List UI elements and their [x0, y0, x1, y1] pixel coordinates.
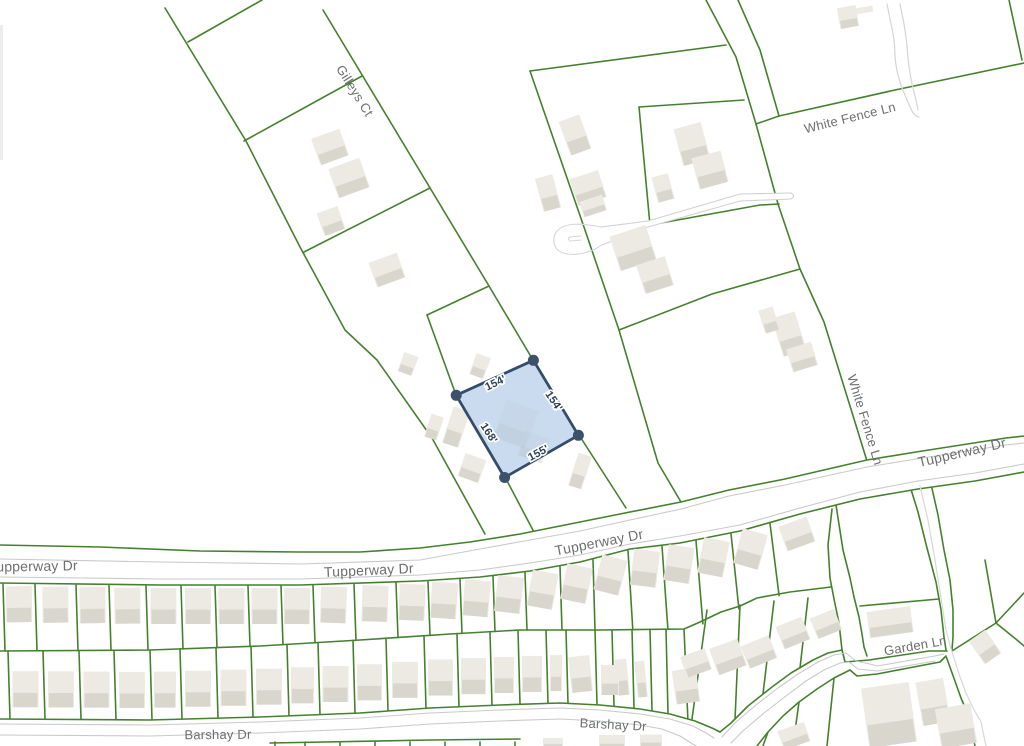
svg-text:Barshay Dr: Barshay Dr — [184, 727, 252, 743]
svg-text:Tupperway Dr: Tupperway Dr — [0, 557, 78, 575]
